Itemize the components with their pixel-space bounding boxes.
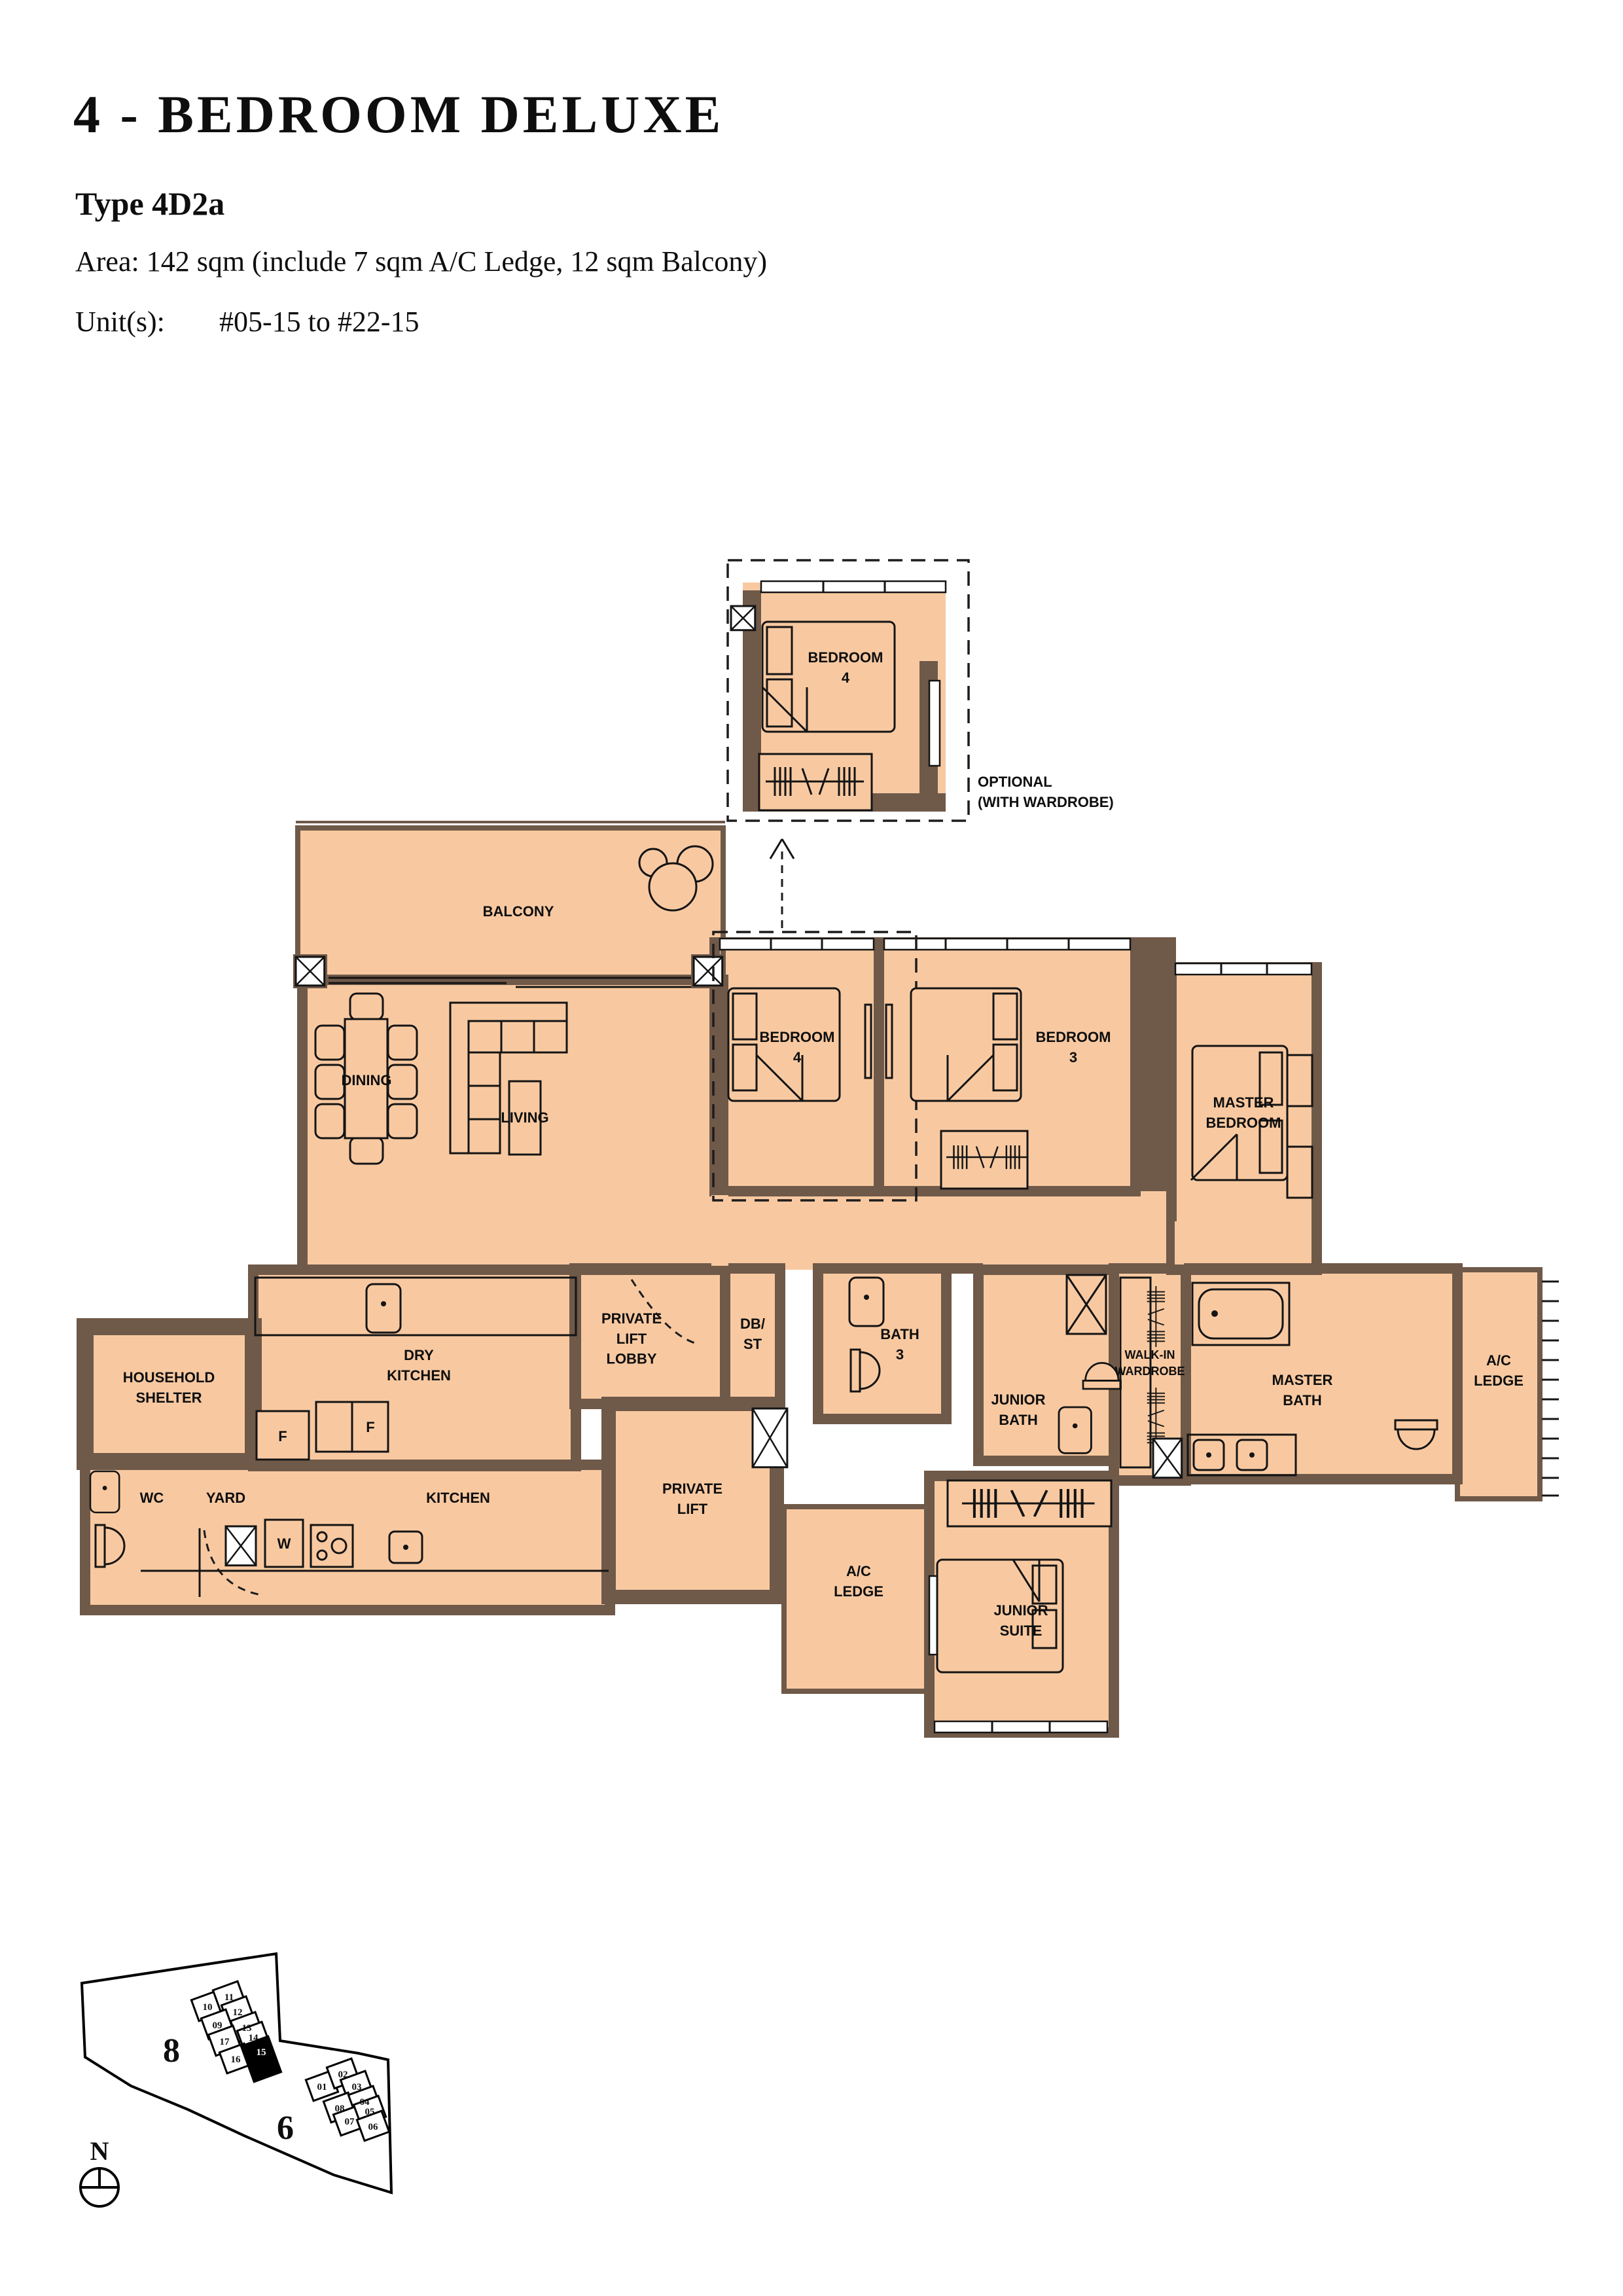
site-unit-number: 09 — [213, 2020, 223, 2031]
column-icon — [691, 954, 725, 988]
units-label: Unit(s): — [75, 306, 165, 338]
sink-icon — [1194, 1440, 1224, 1470]
sink-icon — [366, 1284, 401, 1333]
site-plan: 10 11 12 09 13 17 14 16 15 8 01 02 03 08… — [80, 1954, 391, 2206]
stove-icon — [311, 1525, 353, 1567]
shaft-icon — [1153, 1439, 1182, 1478]
site-unit-number: 17 — [220, 2037, 230, 2047]
living-label: LIVING — [501, 1109, 548, 1126]
site-unit-number: 11 — [224, 1992, 234, 2003]
site-unit-number: 04 — [360, 2097, 370, 2108]
site-block8: 10 11 12 09 13 17 14 16 15 8 — [163, 1981, 281, 2082]
door-leaf — [865, 1005, 871, 1078]
site-unit-number: 05 — [365, 2107, 375, 2117]
units-value: #05-15 to #22-15 — [219, 306, 419, 338]
site-block6: 01 02 03 08 04 07 05 06 6 — [277, 2058, 389, 2147]
washer-label: W — [277, 1535, 291, 1552]
window — [761, 581, 946, 592]
dining-label: DINING — [342, 1072, 392, 1088]
ac-ledge-ticks — [1542, 1282, 1559, 1496]
sink-icon — [90, 1471, 119, 1513]
site-block8-label: 8 — [163, 2032, 180, 2070]
door-leaf — [886, 1005, 892, 1078]
site-unit-number-highlighted: 15 — [257, 2047, 266, 2058]
column-icon — [293, 954, 327, 988]
north-indicator: N — [80, 2136, 118, 2206]
round-table-icon — [649, 863, 696, 910]
page-title: 4 - BEDROOM DELUXE — [73, 84, 724, 144]
fridge-label: F — [366, 1419, 374, 1435]
sink-icon — [849, 1278, 883, 1326]
site-unit-number: 10 — [203, 2002, 213, 2013]
site-block6-label: 6 — [277, 2109, 294, 2147]
site-unit-highlighted — [241, 2036, 281, 2082]
site-unit-number: 16 — [231, 2054, 241, 2065]
wardrobe-icon — [948, 1480, 1111, 1526]
site-unit-number: 08 — [335, 2104, 345, 2114]
unit-type: Type 4D2a — [75, 185, 224, 222]
site-unit-number: 14 — [249, 2033, 259, 2043]
site-unit-number: 01 — [317, 2082, 327, 2092]
area-text: Area: 142 sqm (include 7 sqm A/C Ledge, … — [75, 245, 767, 278]
floorplan-page: 4 - BEDROOM DELUXE Type 4D2a Area: 142 s… — [0, 0, 1623, 2296]
wardrobe-icon — [941, 1131, 1027, 1189]
header: 4 - BEDROOM DELUXE Type 4D2a Area: 142 s… — [73, 84, 767, 338]
shower-icon — [1067, 1275, 1106, 1334]
nightstand-icon — [1287, 1147, 1312, 1198]
site-unit-number: 03 — [352, 2082, 362, 2092]
fridge-label: F — [278, 1428, 287, 1444]
sink-icon — [389, 1532, 422, 1563]
sink-icon — [1237, 1440, 1267, 1470]
north-label: N — [90, 2136, 109, 2166]
balcony-label: BALCONY — [483, 903, 554, 920]
site-unit-number: 02 — [338, 2070, 348, 2080]
shaft-icon — [753, 1408, 787, 1467]
kitchen-label: KITCHEN — [426, 1490, 490, 1506]
optional-note: OPTIONAL(WITH WARDROBE) — [978, 774, 1114, 810]
nightstand-icon — [1287, 1055, 1312, 1106]
wardrobe-icon — [759, 754, 872, 810]
site-unit-number: 13 — [242, 2023, 252, 2034]
shaft-icon — [226, 1526, 256, 1566]
site-unit-number: 07 — [345, 2117, 355, 2127]
window — [929, 681, 940, 766]
wc-label: WC — [140, 1490, 164, 1506]
bathtub-icon — [1192, 1283, 1289, 1345]
bed-icon — [762, 622, 895, 732]
sink-icon — [1059, 1407, 1091, 1453]
optional-bedroom4: BEDROOM4 OPTIONAL(WITH WARDROBE) — [728, 560, 1114, 928]
shaft-icon — [731, 606, 755, 630]
site-unit-number: 06 — [368, 2122, 379, 2132]
site-unit-number: 12 — [233, 2007, 243, 2018]
yard-label: YARD — [206, 1490, 245, 1506]
